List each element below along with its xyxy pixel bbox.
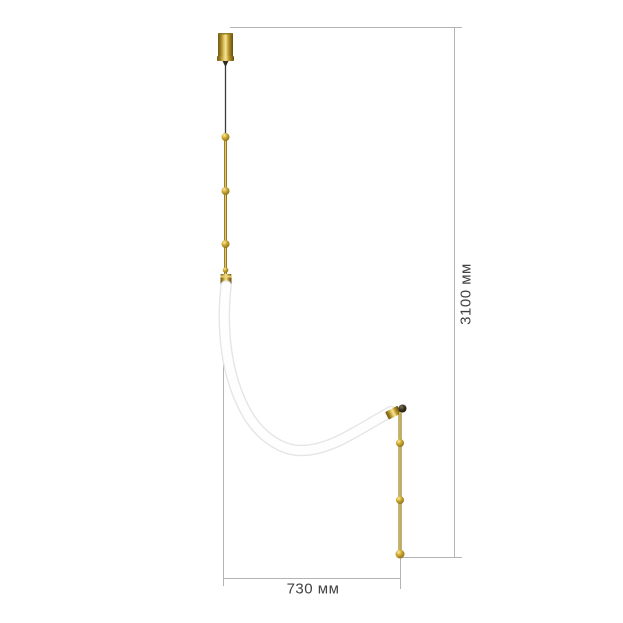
connector-sphere	[399, 405, 407, 413]
ceiling-canopy	[217, 33, 234, 67]
stem-sphere-end	[396, 550, 405, 559]
pendant-lamp-drawing	[0, 0, 623, 623]
flexible-tube	[224, 286, 391, 451]
dimension-lines	[224, 28, 463, 590]
upper-stem	[224, 136, 227, 277]
stem-sphere	[222, 133, 230, 141]
stem-sphere	[222, 240, 230, 248]
height-dimension-label: 3100 мм	[459, 263, 474, 325]
stem-sphere	[222, 187, 230, 195]
lower-stem	[399, 412, 402, 555]
width-dimension-label: 730 мм	[287, 582, 340, 597]
stem-sphere	[396, 496, 404, 504]
stem-sphere-small	[223, 267, 229, 273]
stem-sphere	[396, 439, 404, 447]
pendant-fixture	[217, 33, 407, 559]
cable-entry-cone	[223, 61, 229, 67]
product-dimension-diagram: 3100 мм 730 мм	[0, 0, 623, 623]
